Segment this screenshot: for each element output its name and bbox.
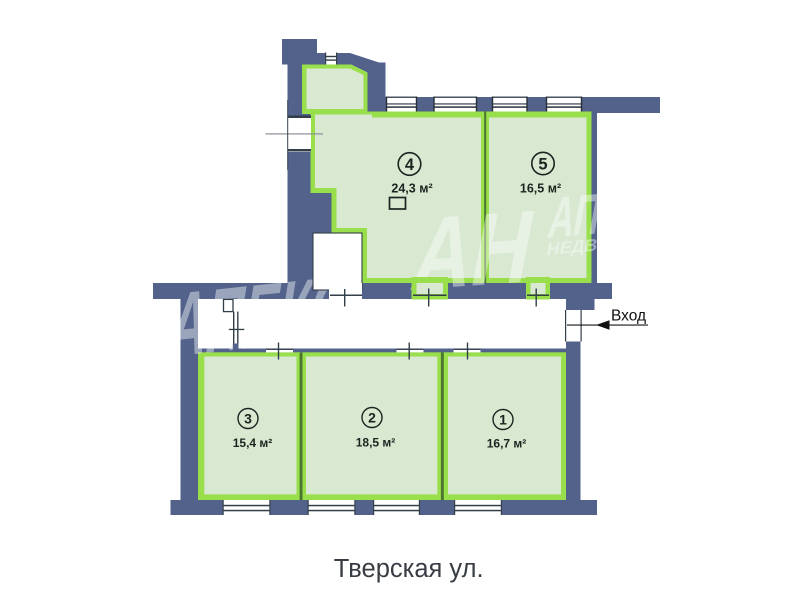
svg-text:18,5 м²: 18,5 м² bbox=[356, 436, 396, 450]
svg-text:16,5 м²: 16,5 м² bbox=[520, 182, 561, 196]
svg-text:2: 2 bbox=[368, 410, 376, 426]
svg-text:Тверская ул.: Тверская ул. bbox=[334, 555, 484, 583]
svg-text:16,7 м²: 16,7 м² bbox=[487, 437, 527, 451]
svg-text:4: 4 bbox=[405, 156, 415, 174]
svg-text:Вход: Вход bbox=[611, 308, 646, 325]
svg-text:1: 1 bbox=[499, 412, 507, 428]
svg-text:3: 3 bbox=[244, 411, 252, 427]
svg-text:24,3 м²: 24,3 м² bbox=[391, 182, 432, 196]
svg-text:5: 5 bbox=[538, 156, 547, 174]
svg-text:15,4 м²: 15,4 м² bbox=[233, 436, 273, 450]
